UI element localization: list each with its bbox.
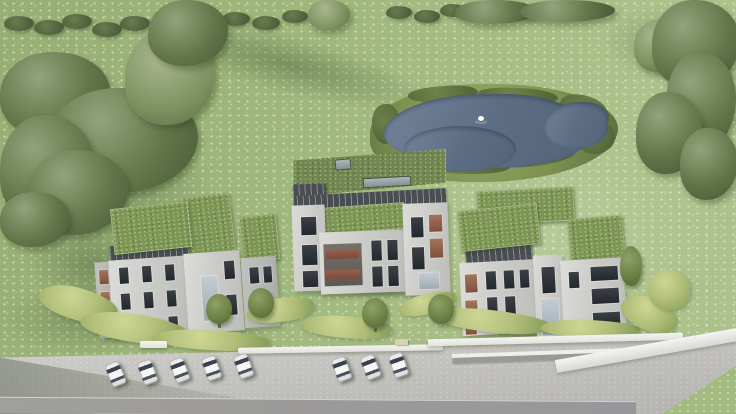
- side-facade: [402, 202, 450, 296]
- garden-hedge: [648, 270, 690, 310]
- aerial-architectural-rendering: [0, 0, 736, 414]
- window: [263, 266, 272, 283]
- window: [569, 272, 580, 289]
- window: [371, 240, 382, 260]
- green-roof: [110, 201, 192, 255]
- window: [301, 217, 317, 236]
- window: [165, 264, 175, 281]
- front-facade: [319, 230, 408, 295]
- window: [430, 238, 444, 257]
- retaining-wall: [140, 341, 167, 348]
- window: [303, 271, 319, 288]
- window: [119, 267, 129, 284]
- window: [590, 266, 618, 281]
- bench: [395, 339, 408, 345]
- window: [520, 269, 530, 287]
- tree: [680, 128, 736, 200]
- swan: [478, 116, 484, 121]
- small-tree: [428, 294, 454, 324]
- terrace-deck: [325, 269, 360, 279]
- small-tree: [620, 246, 642, 286]
- window: [372, 266, 383, 286]
- window: [121, 293, 131, 310]
- window: [144, 292, 154, 309]
- window: [419, 273, 440, 290]
- small-tree: [362, 298, 388, 328]
- terrace-deck: [326, 249, 359, 259]
- window: [167, 290, 177, 307]
- window: [486, 271, 497, 289]
- window: [387, 240, 398, 260]
- window: [249, 267, 259, 284]
- window: [504, 270, 515, 288]
- skylight: [336, 159, 351, 169]
- small-tree: [248, 288, 274, 318]
- small-tree: [206, 294, 232, 324]
- window: [541, 267, 555, 294]
- window: [465, 274, 478, 293]
- window: [99, 270, 109, 285]
- window: [224, 261, 235, 280]
- window: [388, 266, 399, 286]
- window: [142, 266, 152, 283]
- window: [411, 217, 424, 237]
- window: [412, 247, 425, 269]
- green-roof: [457, 203, 541, 252]
- window: [302, 245, 318, 266]
- window: [429, 214, 443, 231]
- window: [592, 288, 620, 304]
- pond-water-tip: [544, 102, 608, 148]
